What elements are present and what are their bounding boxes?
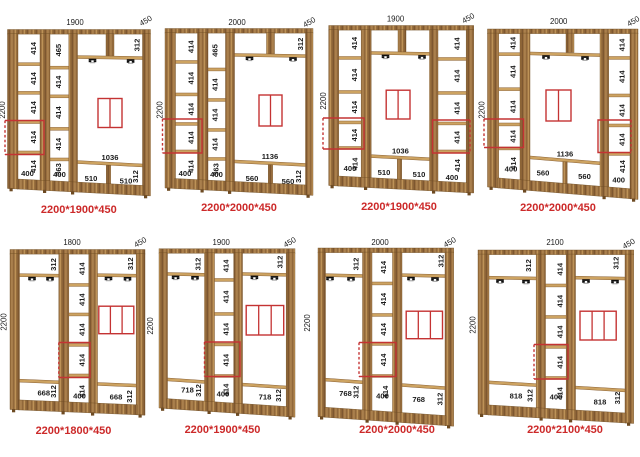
svg-text:450: 450 — [138, 13, 154, 28]
svg-text:414: 414 — [29, 41, 38, 54]
svg-text:768: 768 — [412, 395, 425, 404]
svg-text:2200*1900*450: 2200*1900*450 — [185, 424, 261, 436]
svg-text:414: 414 — [350, 100, 359, 113]
svg-text:1036: 1036 — [102, 153, 119, 162]
svg-text:414: 414 — [556, 355, 565, 368]
svg-text:414: 414 — [379, 292, 388, 305]
svg-text:450: 450 — [132, 235, 148, 250]
svg-text:818: 818 — [510, 392, 523, 401]
svg-text:465: 465 — [54, 43, 63, 56]
svg-text:414: 414 — [509, 36, 518, 49]
svg-text:1900: 1900 — [387, 15, 405, 24]
svg-text:312: 312 — [49, 258, 58, 271]
svg-text:414: 414 — [379, 322, 388, 335]
svg-text:400: 400 — [612, 176, 625, 185]
svg-text:400: 400 — [53, 170, 66, 179]
svg-text:312: 312 — [126, 257, 135, 270]
svg-text:414: 414 — [509, 100, 518, 113]
svg-text:465: 465 — [211, 43, 220, 56]
svg-text:414: 414 — [187, 131, 196, 144]
svg-text:510: 510 — [378, 168, 391, 177]
svg-text:312: 312 — [294, 170, 303, 183]
svg-text:1136: 1136 — [262, 152, 278, 161]
svg-text:2200*2100*450: 2200*2100*450 — [527, 424, 603, 436]
svg-text:560: 560 — [246, 174, 259, 183]
svg-text:414: 414 — [556, 262, 565, 275]
svg-text:414: 414 — [556, 325, 565, 338]
svg-text:2100: 2100 — [546, 238, 564, 247]
svg-text:2200*2000*450: 2200*2000*450 — [201, 202, 277, 214]
svg-text:312: 312 — [49, 385, 58, 398]
svg-text:312: 312 — [194, 258, 203, 271]
svg-text:312: 312 — [276, 256, 285, 269]
svg-text:414: 414 — [211, 78, 220, 91]
svg-text:450: 450 — [621, 236, 637, 251]
svg-text:2000: 2000 — [550, 17, 568, 26]
svg-text:668: 668 — [110, 393, 123, 402]
svg-text:400: 400 — [344, 164, 357, 173]
svg-text:414: 414 — [211, 108, 220, 121]
svg-text:312: 312 — [125, 390, 134, 403]
svg-text:400: 400 — [446, 173, 459, 182]
svg-text:414: 414 — [187, 102, 196, 115]
svg-text:312: 312 — [437, 255, 446, 268]
svg-text:560: 560 — [537, 169, 550, 178]
svg-text:2200: 2200 — [146, 317, 155, 335]
svg-text:2200*1800*450: 2200*1800*450 — [36, 425, 112, 437]
svg-text:414: 414 — [379, 353, 388, 366]
svg-text:1900: 1900 — [213, 238, 231, 247]
svg-text:414: 414 — [379, 260, 388, 273]
svg-text:400: 400 — [376, 392, 389, 401]
svg-text:312: 312 — [436, 393, 445, 406]
svg-text:560: 560 — [578, 172, 591, 181]
svg-text:2200: 2200 — [478, 101, 487, 119]
svg-text:414: 414 — [350, 68, 359, 81]
svg-text:414: 414 — [222, 290, 231, 303]
svg-text:312: 312 — [194, 384, 203, 397]
svg-text:414: 414 — [453, 69, 462, 82]
svg-text:414: 414 — [54, 137, 63, 150]
svg-text:414: 414 — [618, 159, 627, 172]
svg-text:718: 718 — [181, 386, 194, 395]
svg-text:414: 414 — [187, 40, 196, 53]
svg-text:414: 414 — [187, 71, 196, 84]
svg-text:2200: 2200 — [469, 316, 478, 334]
svg-text:2000: 2000 — [371, 238, 389, 247]
svg-text:312: 312 — [613, 392, 622, 405]
svg-text:400: 400 — [210, 170, 223, 179]
svg-text:414: 414 — [618, 38, 627, 51]
svg-text:312: 312 — [352, 258, 361, 271]
svg-text:312: 312 — [524, 259, 533, 272]
svg-text:1900: 1900 — [66, 18, 84, 27]
svg-text:2000: 2000 — [228, 18, 246, 27]
svg-text:414: 414 — [556, 294, 565, 307]
svg-text:2200: 2200 — [156, 101, 165, 119]
svg-text:510: 510 — [413, 170, 426, 179]
svg-text:768: 768 — [339, 389, 352, 398]
svg-text:450: 450 — [442, 235, 458, 250]
svg-text:414: 414 — [222, 353, 231, 366]
svg-text:450: 450 — [460, 11, 476, 26]
svg-text:414: 414 — [350, 36, 359, 49]
svg-text:2200*1900*450: 2200*1900*450 — [361, 201, 437, 213]
svg-text:414: 414 — [54, 105, 63, 118]
svg-text:312: 312 — [296, 38, 305, 51]
svg-text:400: 400 — [21, 169, 34, 178]
svg-text:414: 414 — [453, 158, 462, 171]
svg-text:312: 312 — [133, 39, 142, 52]
svg-text:1036: 1036 — [392, 147, 409, 156]
svg-text:414: 414 — [54, 75, 63, 88]
svg-text:718: 718 — [259, 393, 272, 402]
svg-text:510: 510 — [85, 174, 98, 183]
svg-text:2200*2000*450: 2200*2000*450 — [359, 424, 435, 436]
svg-text:818: 818 — [594, 398, 607, 407]
svg-text:414: 414 — [509, 65, 518, 78]
svg-text:2200: 2200 — [303, 314, 312, 332]
svg-text:414: 414 — [211, 137, 220, 150]
svg-text:400: 400 — [179, 169, 192, 178]
svg-text:414: 414 — [29, 100, 38, 113]
svg-text:312: 312 — [131, 170, 140, 183]
svg-text:450: 450 — [625, 14, 640, 29]
svg-text:414: 414 — [222, 259, 231, 272]
svg-text:414: 414 — [453, 130, 462, 143]
svg-text:414: 414 — [350, 128, 359, 141]
svg-text:2200: 2200 — [0, 313, 9, 331]
svg-text:2200*1900*450: 2200*1900*450 — [41, 204, 117, 216]
svg-text:400: 400 — [73, 392, 86, 401]
svg-text:2200: 2200 — [0, 101, 7, 119]
svg-text:414: 414 — [78, 262, 87, 275]
svg-text:450: 450 — [282, 235, 298, 250]
svg-text:400: 400 — [217, 390, 230, 399]
svg-text:400: 400 — [505, 165, 518, 174]
svg-text:312: 312 — [352, 386, 361, 399]
svg-text:414: 414 — [29, 130, 38, 143]
svg-text:400: 400 — [550, 393, 563, 402]
svg-text:414: 414 — [453, 101, 462, 114]
svg-text:2200: 2200 — [319, 92, 328, 110]
svg-text:450: 450 — [301, 15, 317, 30]
svg-text:414: 414 — [29, 71, 38, 84]
svg-text:2200*2000*450: 2200*2000*450 — [520, 202, 596, 214]
svg-text:312: 312 — [612, 257, 621, 270]
svg-text:414: 414 — [453, 37, 462, 50]
svg-text:414: 414 — [78, 353, 87, 366]
svg-text:414: 414 — [222, 322, 231, 335]
svg-text:414: 414 — [618, 70, 627, 83]
svg-text:414: 414 — [78, 293, 87, 306]
svg-text:312: 312 — [274, 389, 283, 402]
svg-text:414: 414 — [78, 323, 87, 336]
svg-text:414: 414 — [618, 133, 627, 146]
svg-text:414: 414 — [618, 103, 627, 116]
svg-text:414: 414 — [509, 129, 518, 142]
svg-text:312: 312 — [526, 389, 535, 402]
svg-text:1800: 1800 — [63, 238, 81, 247]
svg-text:1136: 1136 — [557, 149, 573, 158]
